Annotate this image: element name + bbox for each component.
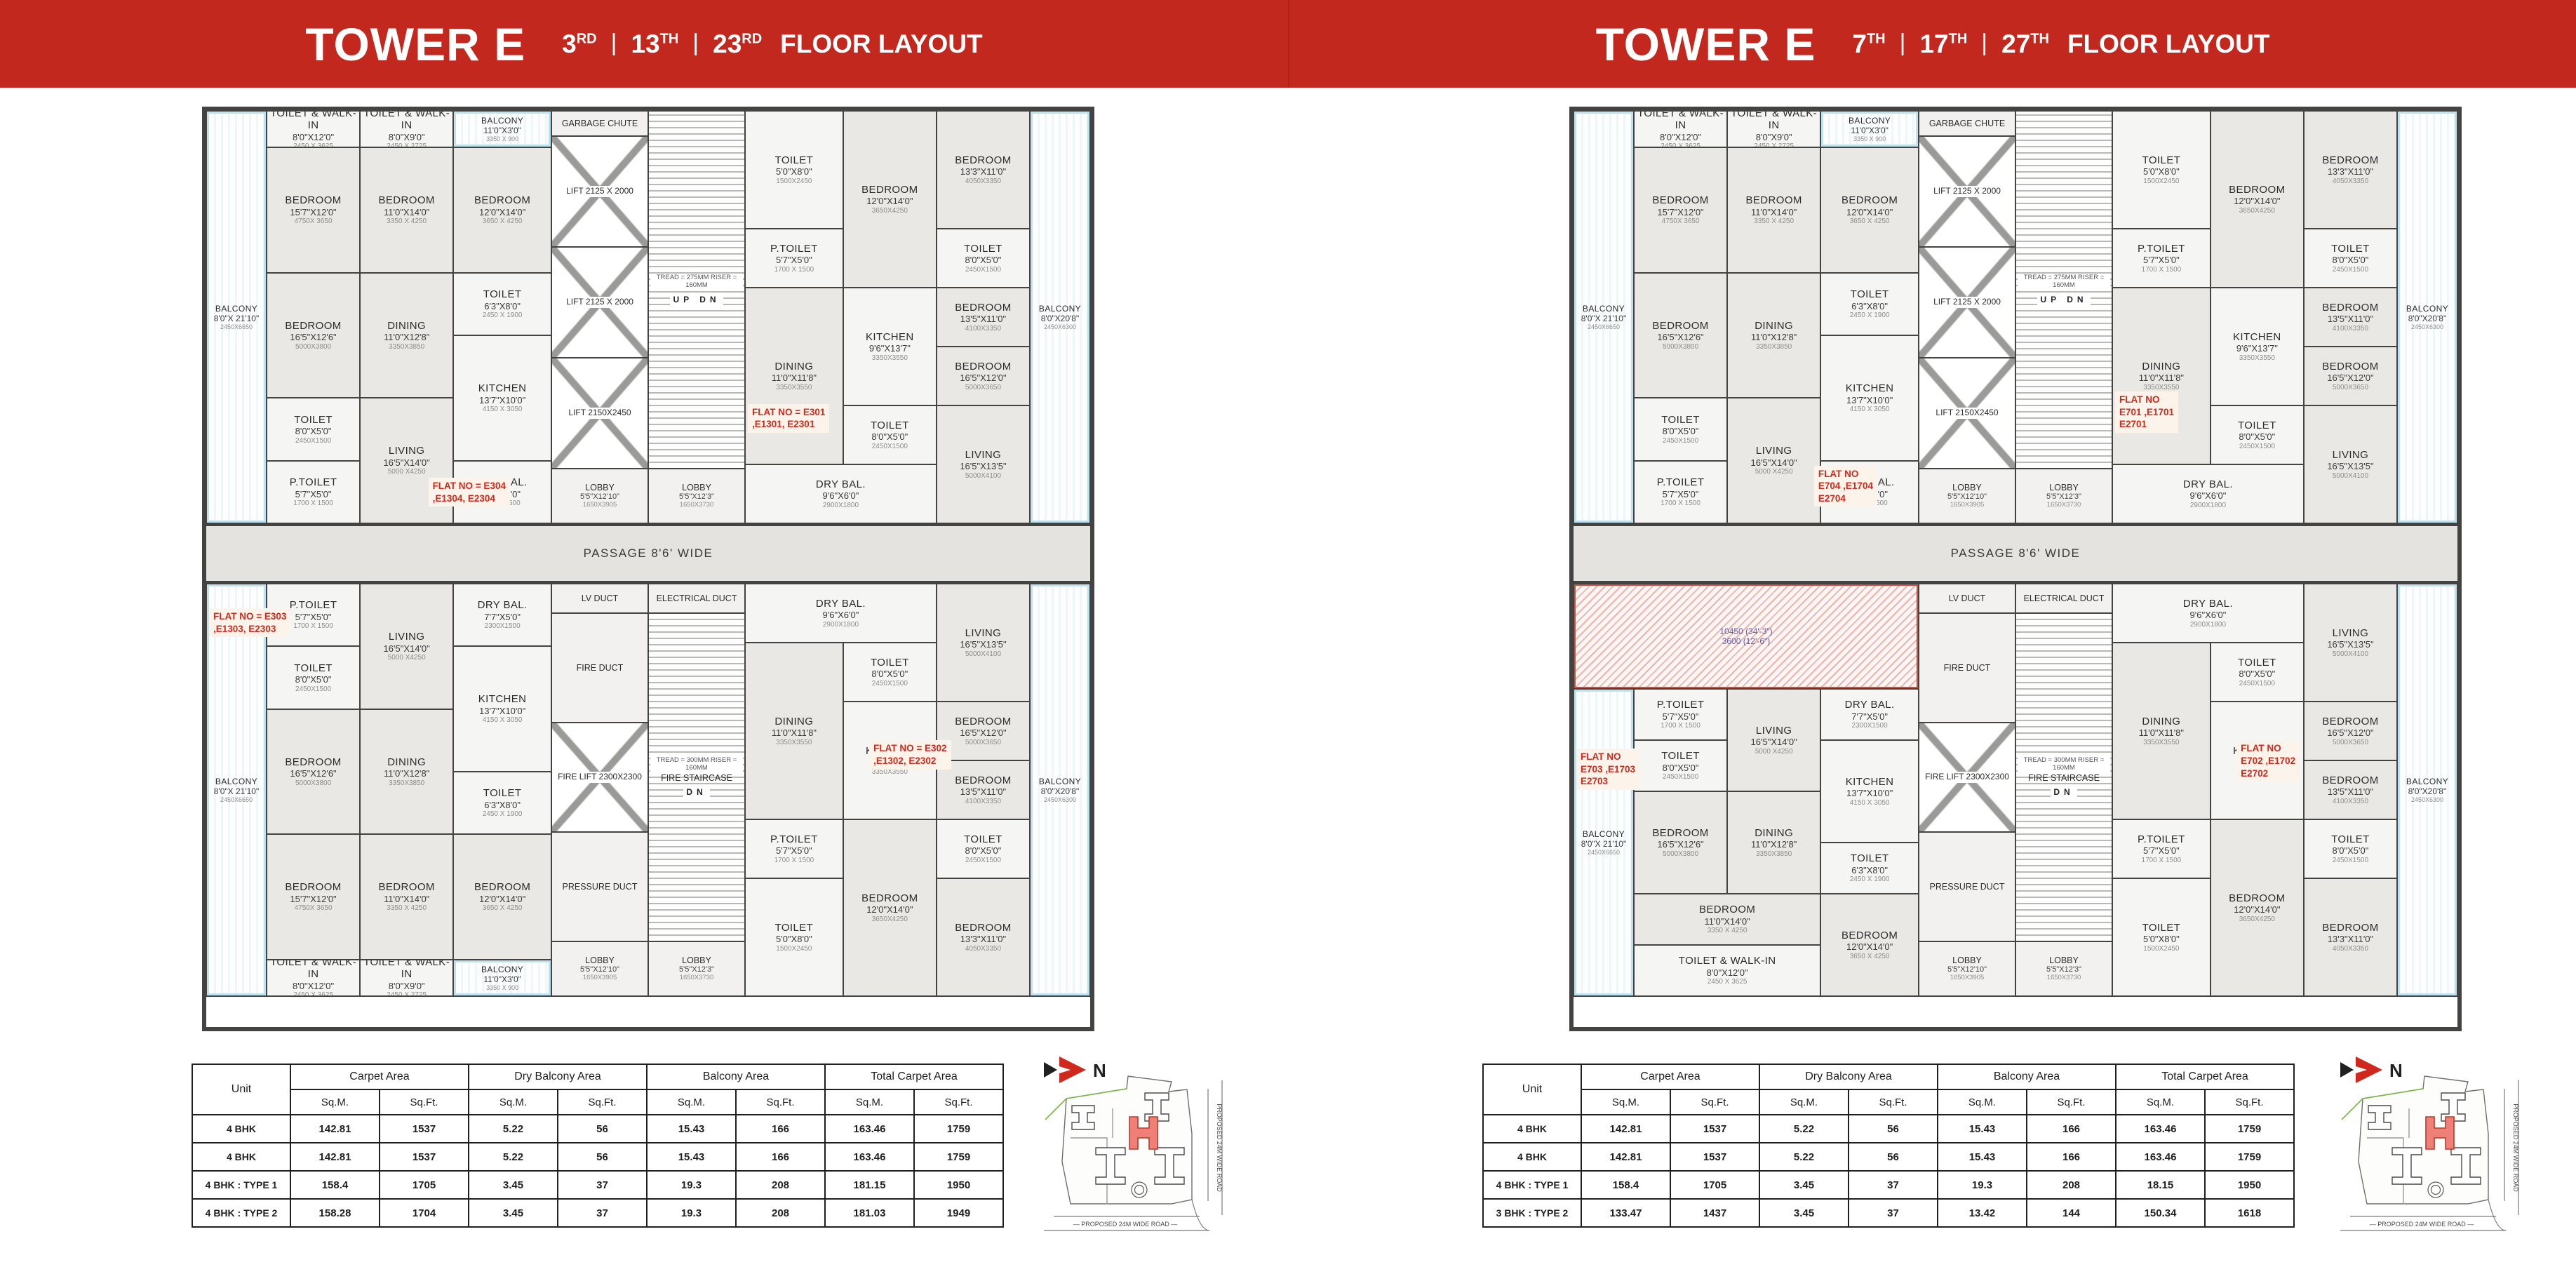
north-arrow: N [2340,1056,2403,1083]
dry-bal--room: DRY BAL.9'6"X6'0"2900X1800 [744,464,937,524]
bedroom-room: BEDROOM13'5"X11'0"4100X3350 [936,287,1031,347]
column-subheader: Sq.Ft. [736,1089,825,1115]
room-dimension-ft: 8'0"X9'0" [389,981,425,991]
room-label: BEDROOM [2322,774,2378,787]
flat-number-label: FLAT NOE701 ,E1701E2701 [2115,391,2178,433]
room-dimension-ft: 5'7"X5'0" [295,489,332,499]
room-dimension-mm: 5000X3800 [1663,850,1698,859]
helipad [2428,1182,2443,1198]
balcony-room: BALCONY8'0"X 21'10"2450X6650 [1573,110,1635,524]
value-cell: 1759 [914,1115,1003,1143]
table-row: 4 BHK : TYPE 1158.417053.453719.3208181.… [192,1171,1003,1199]
value-cell: 150.34 [2116,1199,2205,1227]
column-subheader: Sq.Ft. [1670,1089,1759,1115]
toilet-room: TOILET8'0"X5'0"2450X1500 [843,405,937,465]
value-cell: 56 [1849,1143,1938,1171]
room-dimension-ft: 8'0"X5'0" [2239,431,2275,442]
room-dimension-ft: 8'0"X5'0" [1663,763,1699,773]
room-dimension-mm: 3350X3550 [2143,384,2179,392]
bedroom-room: BEDROOM11'0"X14'0"3350 X 4250 [1726,147,1821,274]
room-dimension-mm: 3350X3850 [1756,850,1792,859]
flat-tr: TOILET5'0"X8'0"1500X2450BEDROOM12'0"X14'… [745,111,1090,523]
room-dimension-mm: 4050X3350 [2333,177,2368,186]
table-row: 4 BHK : TYPE 1158.417053.453719.320818.1… [1483,1171,2294,1199]
bedroom-room: BEDROOM11'0"X14'0"3350 X 4250 [1633,893,1821,946]
living-room: LIVING16'5"X14'0"5000 X4250 [359,583,454,710]
balcony-room: BALCONY8'0"X20'8"2450X6300 [2396,110,2458,524]
room-dimension-ft: 16'5"X14'0" [384,643,430,654]
room-dimension-mm: 1700 X 1500 [2142,266,2182,274]
room-dimension-ft: 12'0"X14'0" [866,196,913,206]
area-table: UnitCarpet AreaDry Balcony AreaBalcony A… [192,1064,1004,1228]
room-label: BEDROOM [474,194,530,207]
toilet-room: TOILET5'0"X8'0"1500X2450 [744,110,844,229]
dining-room: DINING11'0"X11'8"3350X3550 [744,642,844,820]
core-label: LOBBY [585,483,615,492]
value-cell: 166 [2027,1143,2116,1171]
room-label: DINING [387,320,426,333]
room-dimension-mm: 4750X 3650 [295,217,333,226]
value-cell: 13.42 [1938,1199,2027,1227]
core-label: PRESSURE DUCT [563,882,638,892]
room-dimension-ft: 13'7"X10'0" [1846,788,1893,798]
room-label: LIVING [965,627,1002,640]
column-subheader: Sq.M. [825,1089,914,1115]
room-dimension-ft: 13'7"X10'0" [1846,395,1893,405]
room-label: BEDROOM [955,774,1011,787]
room-dimension-ft: 16'5"X12'0" [960,727,1006,738]
room-dimension-mm: 2450X6300 [1044,323,1076,331]
road-label-bottom: — PROPOSED 24M WIDE ROAD — [2370,1221,2474,1228]
core-label: GARBAGE CHUTE [1929,119,2005,128]
column-subheader: Sq.M. [1759,1089,1849,1115]
room-dimension-mm: 3650X4250 [872,207,908,215]
room-label: LIVING [965,449,1002,462]
room-dimension-mm: 2450X6300 [1044,796,1076,804]
room-dimension-ft: 13'3"X11'0" [960,934,1006,944]
room-dimension-mm: 2450X1500 [1663,773,1698,781]
value-cell: 1537 [380,1143,469,1171]
room-label: BEDROOM [1652,194,1708,207]
bedroom-room: BEDROOM12'0"X14'0"3650 X 4250 [452,833,552,960]
room-dimension-ft: 13'3"X11'0" [2328,934,2373,944]
core-label: 1650X3905 [1950,974,1985,982]
site-key-plan: N — PROPOSED 24M WIDE ROAD — PROPOSED 24… [2330,1049,2541,1268]
column-header-unit: Unit [1483,1064,1581,1115]
room-dimension-ft: 11'0"X12'8" [384,768,429,779]
value-cell: 15.43 [1938,1115,2027,1143]
value-cell: 142.81 [1581,1115,1670,1143]
room-dimension-ft: 11'0"X3'0" [483,126,521,135]
toilet-room: TOILET8'0"X5'0"2450X1500 [843,642,937,702]
value-cell: 163.46 [2116,1143,2205,1171]
bedroom-room: BEDROOM13'3"X11'0"4050X3350 [936,878,1031,997]
room-dimension-ft: 12'0"X14'0" [479,207,525,217]
core-label: LOBBY [682,483,711,492]
toilet-room: TOILET5'0"X8'0"1500X2450 [2112,878,2211,997]
value-cell: 15.43 [647,1115,736,1143]
flat-tr: TOILET5'0"X8'0"1500X2450BEDROOM12'0"X14'… [2112,111,2457,523]
bedroom-room: BEDROOM13'3"X11'0"4050X3350 [936,110,1031,229]
room-dimension-ft: 8'0"X 21'10" [1581,314,1626,323]
room-dimension-mm: 3350X3850 [1756,343,1792,351]
kitchen-room: KITCHEN9'6"X13'7"3350X3550 [2210,287,2305,406]
room-dimension-ft: 16'5"X12'0" [960,373,1006,383]
room-label: BALCONY [481,116,523,126]
toilet-walk-in-room: TOILET & WALK-IN8'0"X9'0"2450 X 2725 [359,110,454,148]
room-dimension-mm: 2450X1500 [295,685,331,694]
value-cell: 208 [736,1199,825,1227]
flat-bl: 10450 (34'-3")3600 (12'-6")BALCONY8'0"X … [1574,584,1919,996]
core-label: FIRE DUCT [1944,663,1991,673]
room-label: TOILET [964,243,1002,255]
column-subheader: Sq.Ft. [2027,1089,2116,1115]
living-room: LIVING16'5"X13'5"5000X4100 [936,405,1031,524]
room-dimension-ft: 8'0"X5'0" [965,255,1002,265]
room-dimension-mm: 3350 X 900 [486,984,518,992]
bedroom-room: BEDROOM12'0"X14'0"3650 X 4250 [1820,893,1919,997]
room-label: BEDROOM [955,361,1011,373]
road-label-right: PROPOSED 24M WIDE ROAD [1216,1103,1223,1192]
room-label: BEDROOM [2322,302,2378,314]
room-dimension-mm: 3350X3550 [776,384,812,392]
room-dimension-ft: 8'0"X 21'10" [1581,839,1626,849]
value-cell: 1437 [1670,1199,1759,1227]
staircase: TREAD = 275MM RISER = 160MMUP DN [2015,110,2113,469]
room-label: TOILET & WALK-IN [362,959,451,981]
column-subheader: Sq.Ft. [558,1089,647,1115]
room-dimension-mm: 4150 X 3050 [483,405,523,414]
room-label: DRY BAL. [816,598,866,610]
room-dimension-ft: 11'0"X14'0" [1704,916,1750,927]
room-dimension-mm: 2450X1500 [965,266,1001,274]
lift: LIFT 2125 X 2000 [1918,246,2016,358]
room-label: TOILET [775,154,814,167]
room-dimension-mm: 2450 X 1900 [483,810,523,819]
flat-number-label: FLAT NO = E301,E1301, E2301 [748,404,829,433]
column-group-header: Dry Balcony Area [1759,1064,1938,1089]
p-toilet-room: P.TOILET5'7"X5'0"1700 X 1500 [744,228,844,288]
p-toilet-room: P.TOILET5'7"X5'0"1700 X 1500 [2112,819,2211,879]
room-dimension-mm: 2450X6650 [1588,323,1620,331]
value-cell: 1537 [1670,1143,1759,1171]
room-dimension-mm: 2450X1500 [2239,680,2275,688]
room-dimension-mm: 5000 X4250 [1755,748,1793,756]
room-dimension-mm: 3650X4250 [2239,915,2275,924]
bedroom-room: BEDROOM15'7"X12'0"4750X 3650 [1633,147,1728,274]
room-label: P.TOILET [2138,243,2185,255]
room-dimension-ft: 8'0"X5'0" [295,426,332,436]
room-label: P.TOILET [290,476,337,489]
room-dimension-mm: 2450X6650 [220,323,253,331]
room-dimension-mm: 2450X6650 [1588,849,1620,857]
room-label: BALCONY [1849,116,1891,126]
room-label: TOILET [775,922,814,934]
room-label: BEDROOM [1746,194,1802,207]
room-label: BALCONY [215,777,257,786]
room-dimension-mm: 3350 X 4250 [1754,217,1794,226]
bedroom-room: BEDROOM12'0"X14'0"3650X4250 [843,819,937,997]
flat-number-label: FLAT NO = E302,E1302, E2302 [869,740,951,769]
room-dimension-mm: 3350 X 4250 [1708,927,1747,935]
refuge-area: 10450 (34'-3")3600 (12'-6") [1573,583,1919,690]
value-cell: 37 [1849,1199,1938,1227]
value-cell: 37 [558,1199,647,1227]
room-dimension-ft: 11'0"X12'8" [384,332,429,342]
room-dimension-mm: 4100X3350 [2333,798,2368,806]
room-label: BALCONY [1039,304,1081,314]
separator: | [1900,29,1906,57]
core-label: TREAD = 275MM RISER = 160MM [2018,274,2110,290]
value-cell: 3.45 [1759,1171,1849,1199]
fire-staircase: TREAD = 300MM RISER = 160MMFIRE STAIRCAS… [648,612,746,942]
room-dimension-mm: 1700 X 1500 [293,499,333,508]
room-dimension-ft: 6'3"X8'0" [484,301,521,311]
floor-plan: BALCONY8'0"X 21'10"2450X6650TOILET & WAL… [202,107,1094,1031]
toilet-room: TOILET8'0"X5'0"2450X1500 [2210,642,2305,702]
room-dimension-mm: 2300X1500 [485,622,521,631]
room-dimension-ft: 5'0"X8'0" [2143,934,2180,944]
room-label: P.TOILET [2138,833,2185,846]
room-label: TOILET [483,288,522,301]
room-dimension-mm: 3350X3550 [776,739,812,747]
room-label: BEDROOM [861,892,918,905]
bedroom-room: BEDROOM15'7"X12'0"4750X 3650 [266,147,361,274]
room-dimension-ft: 11'0"X11'8" [772,727,817,738]
layout-panel-right: TOWER E7TH|17TH|27THFLOOR LAYOUTBALCONY8… [1288,0,2576,1288]
room-dimension-mm: 2450X1500 [872,680,908,688]
room-dimension-mm: 3650 X 4250 [483,904,523,913]
value-cell: 3.45 [469,1171,558,1199]
core-fire-block: LV DUCTELECTRICAL DUCTFIRE DUCTTREAD = 3… [551,584,745,996]
room-label: KITCHEN [1846,776,1894,789]
room-dimension-ft: 16'5"X12'6" [1657,839,1703,850]
room-dimension-ft: 12'0"X14'0" [1846,207,1893,217]
value-cell: 1950 [914,1171,1003,1199]
room-dimension-ft: 12'0"X14'0" [2234,196,2280,206]
bedroom-room: BEDROOM11'0"X14'0"3350 X 4250 [359,833,454,960]
room-dimension-ft: 11'0"X14'0" [1751,207,1797,217]
room-label: TOILET [1851,852,1889,865]
room-dimension-ft: 8'0"X20'8" [2408,786,2446,796]
toilet-room: TOILET8'0"X5'0"2450X1500 [936,228,1031,288]
room-label: KITCHEN [478,693,527,706]
room-dimension-mm: 5000X4100 [2333,650,2368,659]
room-label: DINING [774,361,813,373]
core-label: FIRE DUCT [577,663,624,673]
toilet-room: TOILET6'3"X8'0"2450 X 1900 [452,771,552,835]
room-dimension-mm: 2450X6300 [2411,796,2443,804]
bedroom-room: BEDROOM13'5"X11'0"4100X3350 [2303,760,2398,820]
room-label: TOILET [2142,922,2181,934]
room-dimension-ft: 12'0"X14'0" [2234,904,2280,915]
room-label: TOILET [964,833,1002,846]
staircase: TREAD = 275MM RISER = 160MMUP DN [648,110,746,469]
room-dimension-mm: 4750X 3650 [1662,217,1700,226]
value-cell: 158.28 [290,1199,380,1227]
living-room: LIVING16'5"X13'5"5000X4100 [936,583,1031,702]
room-dimension-mm: 5000X3650 [2333,384,2368,392]
unit-cell: 4 BHK : TYPE 2 [192,1199,290,1227]
column-subheader: Sq.Ft. [2205,1089,2294,1115]
column-subheader: Sq.Ft. [380,1089,469,1115]
p-toilet-room: P.TOILET5'7"X5'0"1700 X 1500 [266,460,361,524]
room-dimension-mm: 5000X3650 [2333,739,2368,747]
room-dimension-ft: 5'7"X5'0" [1663,711,1699,722]
core-fire-block: LV DUCTELECTRICAL DUCTFIRE DUCTTREAD = 3… [1919,584,2112,996]
room-dimension-ft: 9'6"X13'7" [2236,343,2278,354]
room-dimension-mm: 2450X1500 [965,857,1001,865]
room-label: DINING [1755,320,1793,333]
panel-header: TOWER E7TH|17TH|27THFLOOR LAYOUT [1288,0,2576,88]
room-label: KITCHEN [2233,331,2281,344]
room-dimension-mm: 1500X2450 [776,177,812,186]
core-label: PRESSURE DUCT [1930,882,2005,892]
room-dimension-mm: 5000X3800 [1663,343,1698,351]
room-dimension-ft: 16'5"X13'5" [960,461,1006,471]
dining-room: DINING11'0"X12'8"3350X3850 [1726,791,1821,894]
living-room: LIVING16'5"X14'0"5000 X4250 [1726,688,1821,792]
toilet-room: TOILET8'0"X5'0"2450X1500 [2303,228,2398,288]
core-label: LIFT 2125 X 2000 [1931,297,2003,308]
room-label: BEDROOM [285,320,341,333]
bedroom-room: BEDROOM11'0"X14'0"3350 X 4250 [359,147,454,274]
room-dimension-ft: 8'0"X20'8" [2408,314,2446,323]
room-dimension-mm: 2450X1500 [295,437,331,445]
fire-staircase: TREAD = 300MM RISER = 160MMFIRE STAIRCAS… [2015,612,2113,942]
room-dimension-mm: 4050X3350 [965,177,1001,186]
room-dimension-mm: 3350X3550 [872,354,908,363]
value-cell: 3.45 [1759,1199,1849,1227]
road-label-right: PROPOSED 24M WIDE ROAD [2512,1103,2519,1192]
room-dimension-mm: 3350X3850 [389,779,424,788]
room-dimension-mm: 3650X4250 [872,915,908,924]
room-dimension-ft: 8'0"X5'0" [295,674,332,685]
passage: PASSAGE 8'6' WIDE [206,523,1090,584]
room-dimension-mm: 2450X1500 [1663,437,1698,445]
value-cell: 158.4 [290,1171,380,1199]
room-label: BALCONY [1039,777,1081,786]
kitchen-room: KITCHEN13'7"X10'0"4150 X 3050 [452,645,552,772]
room-dimension-ft: 8'0"X12'0" [1707,967,1748,978]
room-dimension-mm: 1700 X 1500 [293,622,333,631]
room-dimension-ft: 5'7"X5'0" [776,255,812,265]
room-dimension-ft: 13'3"X11'0" [2328,166,2373,177]
room-dimension-mm: 2450 X 1900 [1850,876,1890,884]
room-label: BEDROOM [2229,892,2285,905]
room-dimension-mm: 5000X4100 [965,650,1001,659]
lift: LIFT 2125 X 2000 [551,135,649,248]
core-label: LIFT 2125 X 2000 [564,186,636,197]
floor-number: 27TH [2001,29,2049,59]
room-dimension-mm: 5000X3650 [965,739,1001,747]
p-toilet-room: P.TOILET5'7"X5'0"1700 X 1500 [744,819,844,879]
flat-number-label: FLAT NO = E304,E1304, E2304 [429,478,510,507]
room-dimension-mm: 4150 X 3050 [483,716,523,725]
room-dimension-mm: 2900X1800 [823,502,859,510]
room-label: DRY BAL. [2183,478,2233,491]
road-label-bottom: — PROPOSED 24M WIDE ROAD — [1073,1221,1178,1228]
column-group-header: Carpet Area [290,1064,469,1089]
unit-cell: 4 BHK [1483,1143,1581,1171]
balcony-room: BALCONY11'0"X3'0"3350 X 900 [452,110,552,148]
column-group-header: Dry Balcony Area [469,1064,647,1089]
room-dimension-ft: 8'0"X5'0" [2333,845,2369,856]
value-cell: 142.81 [1581,1143,1670,1171]
table-row: 4 BHK : TYPE 2158.2817043.453719.3208181… [192,1199,1003,1227]
room-label: BEDROOM [1652,320,1708,333]
room-label: BEDROOM [285,756,341,769]
room-dimension-ft: 8'0"X9'0" [1756,132,1792,142]
header-suffix: FLOOR LAYOUT [780,29,982,59]
room-dimension-mm: 1500X2450 [2143,945,2179,953]
toilet-room: TOILET8'0"X5'0"2450X1500 [2210,405,2305,465]
value-cell: 3.45 [469,1199,558,1227]
value-cell: 19.3 [647,1171,736,1199]
toilet-room: TOILET8'0"X5'0"2450X1500 [266,645,361,709]
core-label: TREAD = 300MM RISER = 160MM [650,756,743,773]
core-label: 1650X3905 [583,974,617,982]
room-dimension-ft: 7'7"X5'0" [484,612,521,622]
room-dimension-ft: 11'0"X11'8" [2139,373,2184,383]
dining-room: DINING11'0"X12'8"3350X3850 [359,709,454,836]
value-cell: 15.43 [647,1143,736,1171]
room-label: BEDROOM [955,302,1011,314]
flat-bl: BALCONY8'0"X 21'10"2450X6650P.TOILET5'7"… [206,584,551,996]
room-label: KITCHEN [478,382,527,395]
room-dimension-mm: 4050X3350 [2333,945,2368,953]
room-label: P.TOILET [1657,476,1705,489]
value-cell: 133.47 [1581,1199,1670,1227]
room-dimension-ft: 5'0"X8'0" [776,934,812,944]
value-cell: 37 [1849,1171,1938,1199]
room-dimension-ft: 11'0"X14'0" [384,207,429,217]
room-dimension-mm: 2900X1800 [2190,621,2226,629]
room-dimension-ft: 12'0"X14'0" [866,904,913,915]
table-row: 3 BHK : TYPE 2133.4714373.453713.4214415… [1483,1199,2294,1227]
column-subheader: Sq.Ft. [1849,1089,1938,1115]
room-dimension-mm: 3650 X 4250 [1850,217,1890,226]
room-dimension-ft: 13'5"X11'0" [960,314,1006,324]
floor-number: 17TH [1919,29,1967,59]
value-cell: 208 [2027,1171,2116,1199]
room-label: BEDROOM [955,922,1011,934]
floor-number: 23RD [713,29,762,59]
room-label: TOILET [1851,288,1889,301]
floor-number: 3RD [562,29,596,59]
dining-room: DINING11'0"X11'8"3350X3550 [744,287,844,465]
room-dimension-ft: 11'0"X12'8" [1751,332,1797,342]
value-cell: 158.4 [1581,1171,1670,1199]
core-label: FIRE LIFT 2300X2300 [556,772,644,783]
core-label: FIRE STAIRCASE [661,773,732,783]
p-toilet-room: P.TOILET5'7"X5'0"1700 X 1500 [2112,228,2211,288]
room-dimension-ft: 12'0"X14'0" [1846,941,1893,952]
room-label: BEDROOM [2229,184,2285,196]
room-label: DRY BAL. [478,599,528,612]
room-label: BEDROOM [861,184,918,196]
room-label: TOILET [1661,750,1700,763]
core-label: ELECTRICAL DUCT [657,593,737,603]
value-cell: 142.81 [290,1115,380,1143]
room-dimension-mm: 5000X3800 [295,343,331,351]
separator: | [1981,29,1987,57]
bedroom-room: BEDROOM16'5"X12'6"5000X3800 [1633,791,1728,894]
core-label: LV DUCT [1949,593,1986,603]
room-dimension-ft: 5'7"X5'0" [2143,845,2180,856]
value-cell: 5.22 [1759,1115,1849,1143]
living-room: LIVING16'5"X14'0"5000 X4250 [1726,397,1821,524]
